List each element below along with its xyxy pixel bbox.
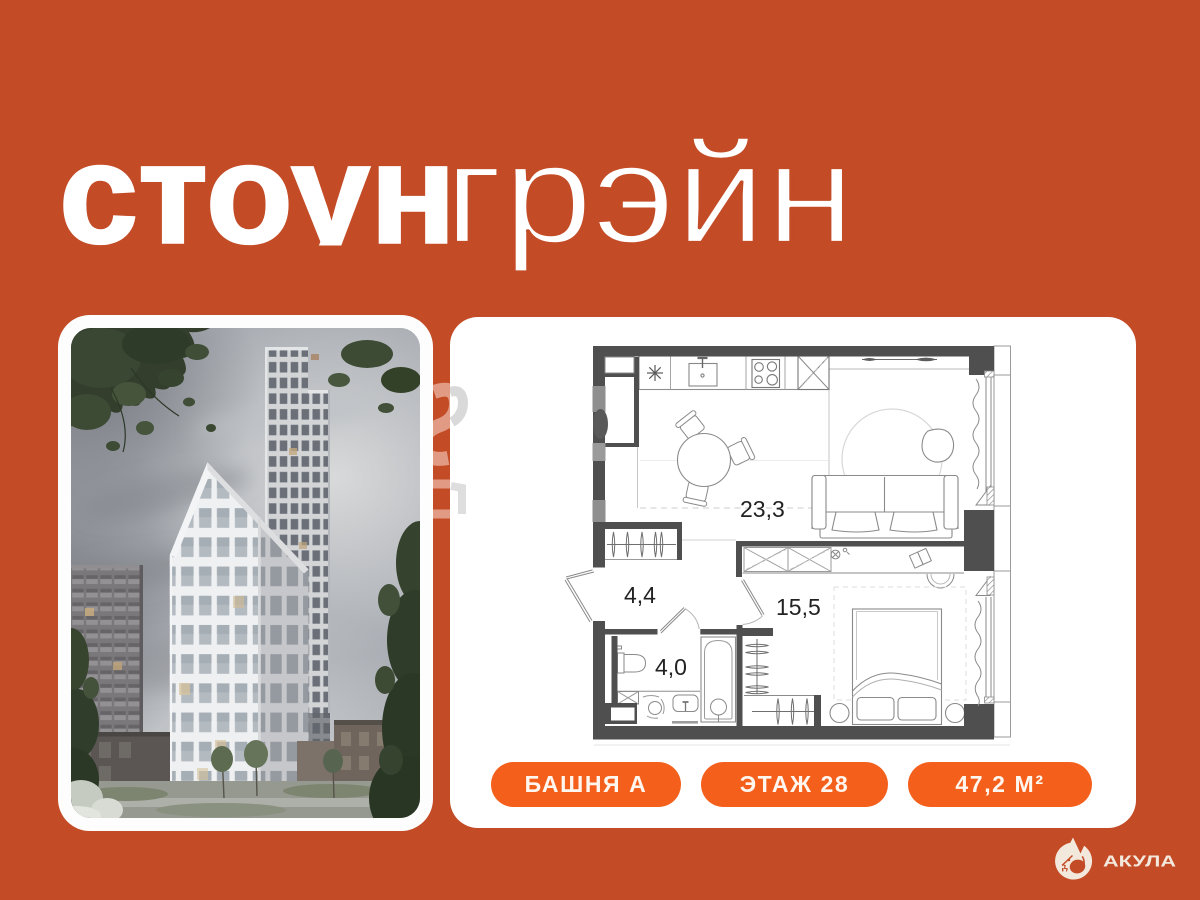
svg-text:23,3: 23,3: [740, 496, 785, 522]
svg-text:4,4: 4,4: [624, 582, 656, 608]
svg-text:15,5: 15,5: [776, 594, 821, 620]
svg-text:АКУЛА: АКУЛА: [1103, 854, 1176, 871]
svg-text:стоун: стоун: [59, 115, 456, 274]
svg-text:грэйн: грэйн: [444, 115, 855, 274]
svg-text:4,0: 4,0: [655, 654, 687, 680]
